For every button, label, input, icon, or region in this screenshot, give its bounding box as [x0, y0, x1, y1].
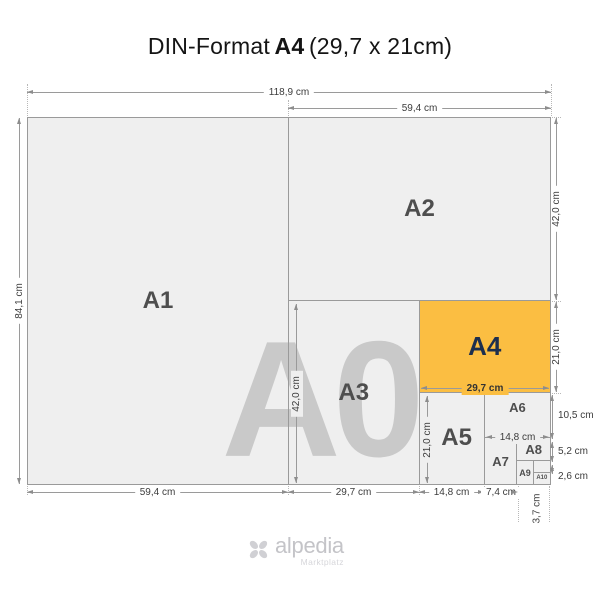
dim-height-a10-label: 2,6 cm — [558, 471, 588, 482]
dim-inner-a5-label: 21,0 cm — [422, 417, 434, 463]
dim-inner-a3-height: 42,0 cm — [296, 304, 297, 483]
dim-inner-a5-height: 21,0 cm — [427, 396, 428, 483]
dim-width-a7: 7,4 cm — [484, 492, 518, 493]
title-format: A4 — [275, 33, 305, 59]
dim-height-a0: 84,1 cm — [19, 118, 20, 484]
format-cell-a7: A7 — [485, 438, 518, 484]
format-label-a2: A2 — [404, 195, 435, 223]
din-format-diagram: DIN-FormatA4(29,7 x 21cm) A0 A1 A2 A3 A4… — [0, 0, 600, 600]
format-label-a10: A10 — [536, 475, 547, 481]
dim-inner-a4-label: 29,7 cm — [462, 383, 509, 395]
dim-height-a6 — [552, 395, 553, 439]
format-label-a6: A6 — [509, 400, 526, 415]
dim-height-a6-label: 10,5 cm — [558, 410, 594, 421]
dim-width-a5-label: 14,8 cm — [429, 487, 475, 499]
format-cell-a10 — [534, 461, 550, 472]
dim-width-a7-label: 7,4 cm — [481, 487, 521, 499]
dim-width-a5: 14,8 cm — [419, 492, 484, 493]
dim-width-a3-label: 29,7 cm — [331, 487, 377, 499]
dim-width-a9-label: 3,7 cm — [532, 493, 543, 523]
logo-texts: alpedia Marktplatz — [275, 534, 344, 567]
format-label-a3: A3 — [338, 379, 369, 407]
dim-inner-a6-width: 14,8 cm — [486, 437, 549, 438]
guide-line — [27, 84, 28, 116]
guide-line — [551, 84, 552, 116]
guide-line — [552, 393, 561, 394]
dim-inner-a3-label: 42,0 cm — [291, 371, 303, 417]
logo-subtitle: Marktplatz — [301, 558, 344, 567]
dim-width-a2-label: 59,4 cm — [397, 103, 443, 115]
dim-height-a10 — [552, 465, 553, 474]
format-cell-a1: A1 — [28, 118, 289, 484]
dim-height-a8-label: 5,2 cm — [558, 446, 588, 457]
format-cell-a9: A9 — [517, 461, 533, 484]
dim-height-a8 — [552, 442, 553, 462]
dim-width-a1: 59,4 cm — [27, 492, 288, 493]
dim-height-a4-label: 21,0 cm — [551, 324, 563, 370]
format-cell-a3: A3 — [289, 301, 420, 484]
format-cell-a2: A2 — [289, 118, 550, 301]
page-title: DIN-FormatA4(29,7 x 21cm) — [0, 33, 600, 60]
dim-width-a3: 29,7 cm — [288, 492, 419, 493]
format-label-a5: A5 — [441, 424, 472, 452]
dim-inner-a6-label: 14,8 cm — [495, 432, 541, 444]
dim-height-a4: 21,0 cm — [556, 302, 557, 392]
dim-height-a2-label: 42,0 cm — [551, 186, 563, 232]
alpedia-logo-icon — [246, 537, 271, 562]
format-cell-a4: A4 — [420, 301, 551, 393]
dim-width-a1-label: 59,4 cm — [135, 487, 181, 499]
format-label-a4: A4 — [468, 331, 501, 362]
dim-height-a0-label: 84,1 cm — [14, 278, 26, 324]
guide-line — [549, 486, 550, 522]
dim-height-a2: 42,0 cm — [556, 118, 557, 300]
format-cell-a10-label: A10 — [534, 473, 550, 484]
title-prefix: DIN-Format — [148, 33, 270, 59]
alpedia-logo: alpedia Marktplatz — [246, 534, 344, 567]
format-label-a9: A9 — [519, 468, 531, 478]
title-suffix: (29,7 x 21cm) — [309, 33, 452, 59]
dim-width-a0-label: 118,9 cm — [264, 87, 314, 99]
logo-name: alpedia — [275, 534, 344, 558]
format-label-a7: A7 — [492, 454, 509, 469]
format-label-a1: A1 — [143, 287, 174, 315]
dim-width-a2: 59,4 cm — [288, 108, 551, 109]
paper-sheet-a0: A0 A1 A2 A3 A4 A5 A6 A7 A8 A9 A10 — [27, 117, 551, 485]
dim-inner-a4-width: 29,7 cm — [421, 388, 549, 389]
dim-width-a0: 118,9 cm — [27, 92, 551, 93]
